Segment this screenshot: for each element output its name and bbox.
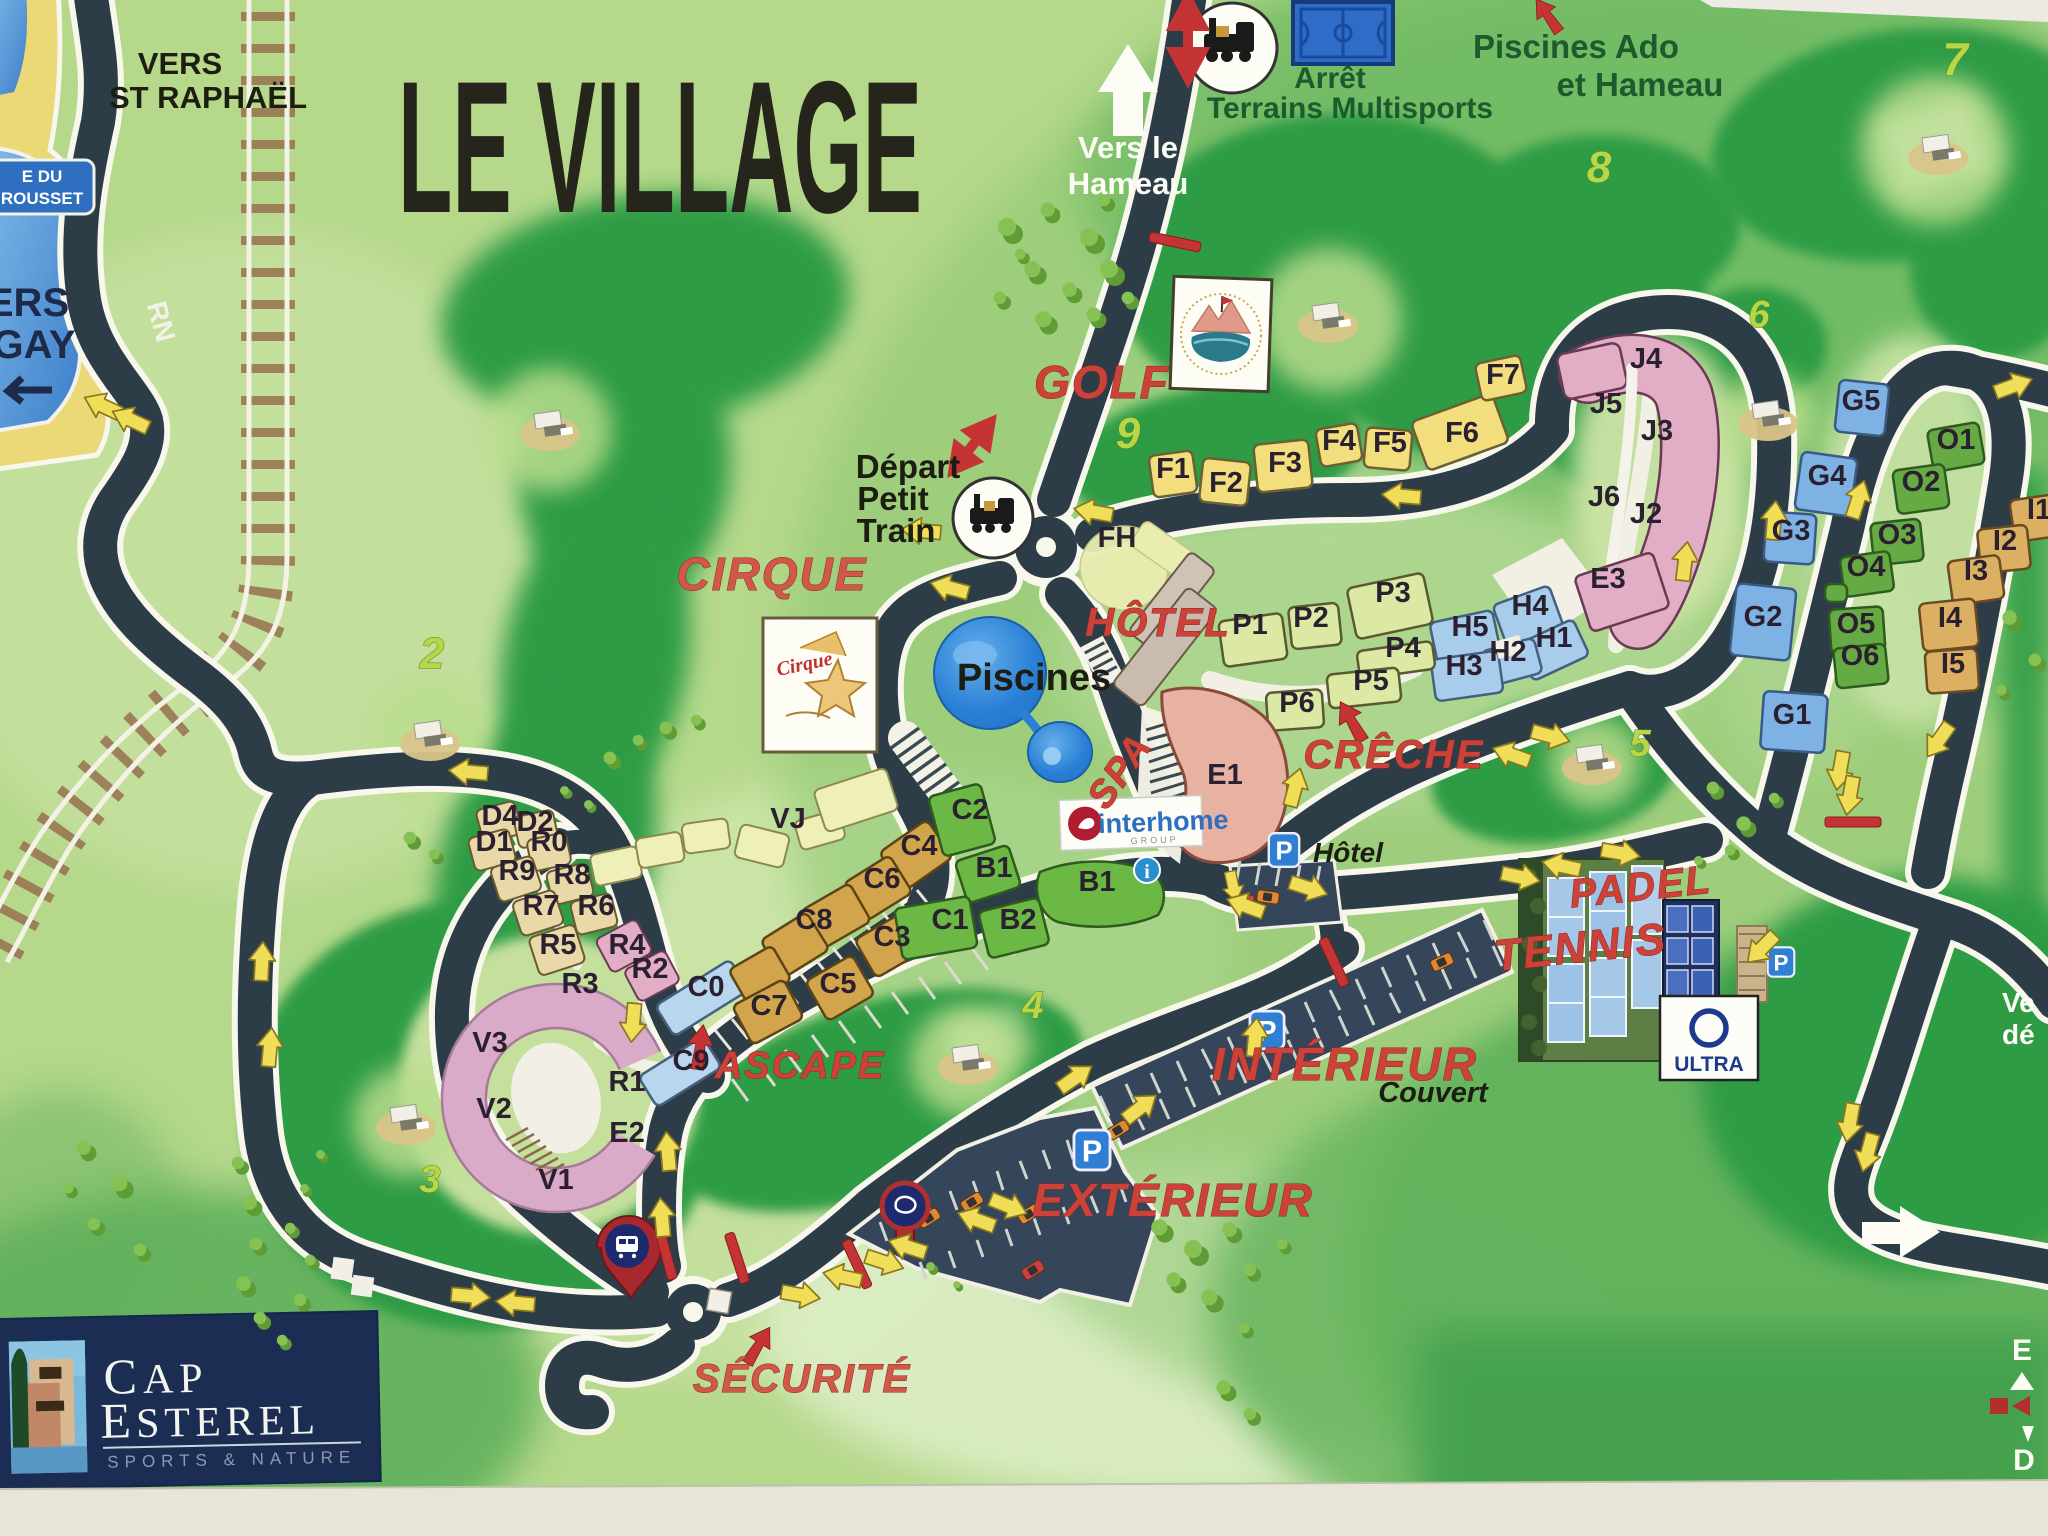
svg-text:i: i — [1144, 861, 1150, 883]
svg-text:GAY: GAY — [0, 323, 76, 367]
svg-text:I2: I2 — [1993, 525, 2017, 557]
svg-text:6: 6 — [1748, 294, 1770, 336]
svg-text:C4: C4 — [900, 830, 937, 862]
svg-text:ERS: ERS — [0, 281, 69, 325]
svg-text:CIRQUE: CIRQUE — [677, 548, 868, 600]
svg-text:O6: O6 — [1841, 640, 1880, 672]
svg-text:O4: O4 — [1847, 551, 1886, 583]
svg-text:SÉCURITÉ: SÉCURITÉ — [693, 1356, 911, 1401]
svg-text:Arrêt: Arrêt — [1294, 62, 1366, 95]
svg-text:LE VILLAGE: LE VILLAGE — [398, 42, 922, 252]
svg-text:V3: V3 — [472, 1027, 507, 1059]
svg-text:4: 4 — [1021, 985, 1043, 1027]
svg-text:ULTRA: ULTRA — [1674, 1053, 1744, 1076]
svg-text:C9: C9 — [672, 1045, 709, 1077]
svg-text:F1: F1 — [1156, 453, 1190, 485]
svg-text:GOLF: GOLF — [1034, 356, 1170, 408]
svg-text:C8: C8 — [795, 904, 832, 936]
svg-text:ROUSSET: ROUSSET — [1, 189, 84, 208]
svg-text:H3: H3 — [1445, 650, 1482, 682]
svg-text:J5: J5 — [1590, 388, 1622, 420]
svg-text:B2: B2 — [999, 904, 1036, 936]
svg-text:E3: E3 — [1590, 563, 1625, 595]
svg-text:et Hameau: et Hameau — [1557, 66, 1724, 103]
svg-text:GROUP: GROUP — [1130, 834, 1178, 846]
svg-text:R0: R0 — [530, 826, 567, 858]
svg-text:F5: F5 — [1373, 427, 1407, 459]
svg-text:D1: D1 — [475, 826, 512, 858]
svg-text:I5: I5 — [1941, 648, 1965, 680]
svg-text:O2: O2 — [1902, 466, 1941, 498]
svg-text:D: D — [2013, 1444, 2035, 1477]
svg-text:F6: F6 — [1445, 417, 1479, 449]
svg-text:Hôtel: Hôtel — [1313, 837, 1384, 868]
svg-text:H4: H4 — [1511, 590, 1548, 622]
svg-text:I1: I1 — [2027, 494, 2048, 526]
svg-text:C5: C5 — [819, 968, 856, 1000]
svg-text:R7: R7 — [522, 890, 559, 922]
svg-text:dé: dé — [2002, 1019, 2035, 1050]
svg-text:Train: Train — [857, 512, 936, 549]
svg-text:J2: J2 — [1630, 498, 1662, 530]
svg-text:J3: J3 — [1641, 415, 1673, 447]
svg-text:P: P — [1275, 838, 1292, 866]
svg-text:C0: C0 — [687, 971, 724, 1003]
svg-text:Terrains Multisports: Terrains Multisports — [1207, 92, 1493, 125]
svg-text:P1: P1 — [1232, 609, 1267, 641]
svg-text:E: E — [2012, 1334, 2032, 1367]
svg-text:Hameau: Hameau — [1068, 166, 1189, 201]
svg-text:F7: F7 — [1486, 359, 1520, 391]
svg-text:ASCAPE: ASCAPE — [714, 1045, 885, 1087]
svg-text:Vers le: Vers le — [1078, 130, 1178, 165]
svg-text:R5: R5 — [539, 929, 576, 961]
svg-text:P4: P4 — [1385, 632, 1420, 664]
svg-text:R1: R1 — [608, 1066, 645, 1098]
svg-text:HÔTEL: HÔTEL — [1085, 599, 1231, 645]
svg-text:F3: F3 — [1268, 447, 1302, 479]
svg-text:P: P — [1774, 950, 1789, 975]
svg-text:H1: H1 — [1535, 622, 1572, 654]
svg-text:V1: V1 — [538, 1164, 573, 1196]
svg-text:G3: G3 — [1772, 515, 1811, 547]
svg-text:I4: I4 — [1938, 602, 1962, 634]
svg-text:VERS: VERS — [138, 46, 222, 81]
svg-text:I3: I3 — [1964, 555, 1988, 587]
svg-text:H2: H2 — [1489, 636, 1526, 668]
svg-text:Piscines Ado: Piscines Ado — [1473, 28, 1679, 65]
svg-text:R6: R6 — [577, 890, 614, 922]
svg-text:H5: H5 — [1451, 611, 1488, 643]
svg-text:J4: J4 — [1630, 343, 1662, 375]
svg-text:2: 2 — [419, 629, 445, 678]
svg-text:E1: E1 — [1207, 759, 1242, 791]
svg-text:P5: P5 — [1353, 665, 1388, 697]
svg-text:P3: P3 — [1375, 577, 1410, 609]
svg-text:O5: O5 — [1837, 608, 1876, 640]
svg-text:B1: B1 — [975, 852, 1012, 884]
svg-text:P: P — [1082, 1134, 1102, 1168]
svg-text:R3: R3 — [561, 968, 598, 1000]
svg-text:C6: C6 — [863, 863, 900, 895]
svg-text:E2: E2 — [609, 1117, 644, 1149]
svg-text:CRÊCHE: CRÊCHE — [1304, 731, 1485, 777]
svg-text:5: 5 — [1629, 723, 1651, 765]
svg-text:G4: G4 — [1808, 460, 1847, 492]
svg-text:P2: P2 — [1293, 602, 1328, 634]
svg-text:8: 8 — [1587, 143, 1612, 192]
svg-text:EXTÉRIEUR: EXTÉRIEUR — [1032, 1174, 1313, 1226]
svg-text:G5: G5 — [1842, 385, 1881, 417]
svg-text:G1: G1 — [1773, 699, 1812, 731]
svg-text:9: 9 — [1116, 409, 1141, 458]
svg-text:7: 7 — [1942, 33, 1970, 85]
svg-text:R8: R8 — [553, 859, 590, 891]
svg-text:Ve: Ve — [2002, 987, 2035, 1018]
svg-text:FH: FH — [1098, 522, 1137, 554]
svg-text:G2: G2 — [1744, 601, 1783, 633]
svg-text:ST RAPHAËL: ST RAPHAËL — [109, 80, 307, 115]
svg-text:Couvert: Couvert — [1378, 1077, 1489, 1109]
svg-text:C7: C7 — [750, 990, 787, 1022]
svg-text:R9: R9 — [498, 855, 535, 887]
svg-text:B1: B1 — [1078, 866, 1115, 898]
svg-text:Piscines: Piscines — [957, 657, 1111, 699]
svg-text:F4: F4 — [1322, 425, 1356, 457]
svg-text:R2: R2 — [631, 953, 668, 985]
svg-text:F2: F2 — [1209, 467, 1243, 499]
svg-text:V2: V2 — [476, 1093, 511, 1125]
svg-text:J6: J6 — [1588, 481, 1620, 513]
svg-text:VJ: VJ — [770, 803, 805, 835]
svg-text:O3: O3 — [1878, 519, 1917, 551]
svg-text:3: 3 — [419, 1159, 440, 1201]
svg-text:C3: C3 — [873, 921, 910, 953]
svg-text:O1: O1 — [1937, 424, 1976, 456]
svg-text:C2: C2 — [951, 794, 988, 826]
svg-text:E DU: E DU — [22, 167, 63, 186]
svg-text:C1: C1 — [931, 904, 968, 936]
svg-text:P6: P6 — [1279, 687, 1314, 719]
